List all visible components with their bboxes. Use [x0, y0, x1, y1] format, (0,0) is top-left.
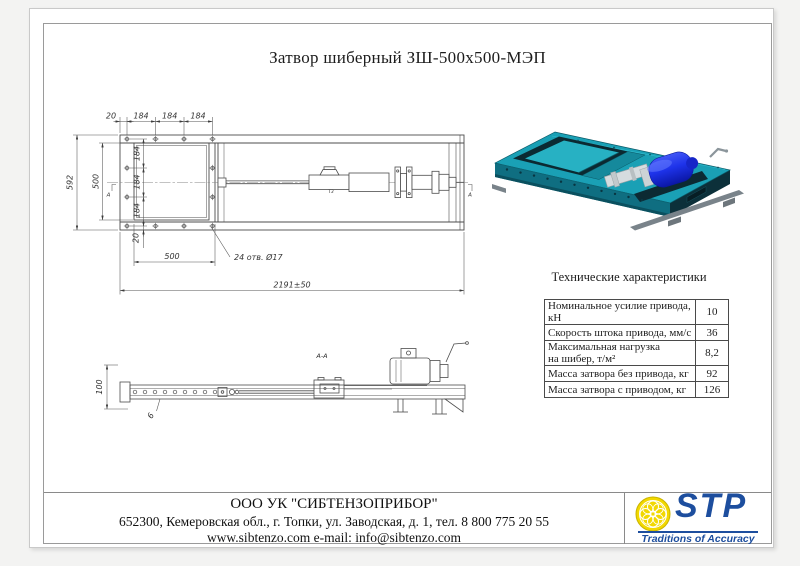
spec-label: Максимальная нагрузка на шибер, т/м²: [545, 341, 696, 366]
svg-text:100: 100: [95, 379, 104, 394]
company-address: 652300, Кемеровская обл., г. Топки, ул. …: [44, 514, 624, 530]
side-body-outline: [120, 342, 468, 414]
drawing-sheet: Затвор шиберный ЗШ-500х500-МЭП: [29, 8, 774, 548]
company-info-block: ООО УК "СИБТЕНЗОПРИБОР" 652300, Кемеровс…: [44, 493, 625, 544]
spec-label: Номинальное усилие привода, кН: [545, 300, 696, 325]
side-dimension-lines: [104, 365, 160, 411]
specs-title: Технические характеристики: [514, 270, 744, 285]
svg-text:А-А: А-А: [315, 352, 327, 360]
spec-label: Скорость штока привода, мм/с: [545, 325, 696, 341]
plan-view-drawing: 20 184 184 184 592 500 184 184 184 20 50…: [57, 88, 477, 300]
spec-value: 10: [696, 300, 729, 325]
svg-text:А: А: [106, 193, 111, 199]
logo-block: STP Traditions of Accuracy: [625, 493, 771, 544]
svg-text:500: 500: [164, 252, 179, 261]
svg-text:500: 500: [92, 174, 101, 189]
footer-band: ООО УК "СИБТЕНЗОПРИБОР" 652300, Кемеровс…: [44, 492, 771, 544]
company-contacts: www.sibtenzo.com e-mail: info@sibtenzo.c…: [44, 530, 624, 546]
svg-text:184: 184: [133, 203, 142, 218]
table-row: Скорость штока привода, мм/с 36: [545, 325, 729, 341]
svg-text:592: 592: [66, 175, 75, 190]
drawing-frame: Затвор шиберный ЗШ-500х500-МЭП: [43, 23, 772, 544]
svg-text:20: 20: [106, 112, 116, 121]
stp-emblem-icon: [635, 496, 671, 532]
spec-label: Масса затвора без привода, кг: [545, 366, 696, 382]
spec-value: 36: [696, 325, 729, 341]
side-view-drawing: 100 6 А-А: [82, 332, 482, 427]
table-row: Масса затвора без привода, кг 92: [545, 366, 729, 382]
svg-text:2191±50: 2191±50: [273, 281, 310, 290]
svg-text:184: 184: [162, 112, 177, 121]
spec-value: 92: [696, 366, 729, 382]
svg-text:Т3: Т3: [328, 189, 334, 195]
spec-label-line2: на шибер, т/м²: [548, 353, 692, 365]
stp-logo-text: STP: [675, 487, 747, 526]
svg-text:20: 20: [132, 233, 141, 243]
svg-text:А: А: [467, 193, 472, 199]
spec-label: Масса затвора с приводом, кг: [545, 382, 696, 398]
svg-text:184: 184: [133, 174, 142, 189]
product-render-3d: [482, 100, 772, 255]
spec-value: 8,2: [696, 341, 729, 366]
svg-text:24 отв. Ø17: 24 отв. Ø17: [234, 252, 283, 262]
svg-text:184: 184: [190, 112, 205, 121]
drawing-title: Затвор шиберный ЗШ-500х500-МЭП: [44, 48, 771, 68]
table-row: Масса затвора с приводом, кг 126: [545, 382, 729, 398]
valve-3d-body: [492, 132, 744, 231]
spec-label-line1: Максимальная нагрузка: [548, 341, 692, 353]
svg-text:184: 184: [133, 112, 148, 121]
company-name: ООО УК "СИБТЕНЗОПРИБОР": [44, 496, 624, 513]
svg-text:184: 184: [133, 146, 142, 161]
spec-value: 126: [696, 382, 729, 398]
table-row: Номинальное усилие привода, кН 10: [545, 300, 729, 325]
table-row: Максимальная нагрузка на шибер, т/м² 8,2: [545, 341, 729, 366]
svg-text:6: 6: [146, 411, 156, 420]
dimension-labels: 20 184 184 184 592 500 184 184 184 20 50…: [66, 112, 473, 290]
specs-table: Номинальное усилие привода, кН 10 Скорос…: [544, 299, 729, 398]
stp-logo-tagline: Traditions of Accuracy: [638, 533, 758, 545]
